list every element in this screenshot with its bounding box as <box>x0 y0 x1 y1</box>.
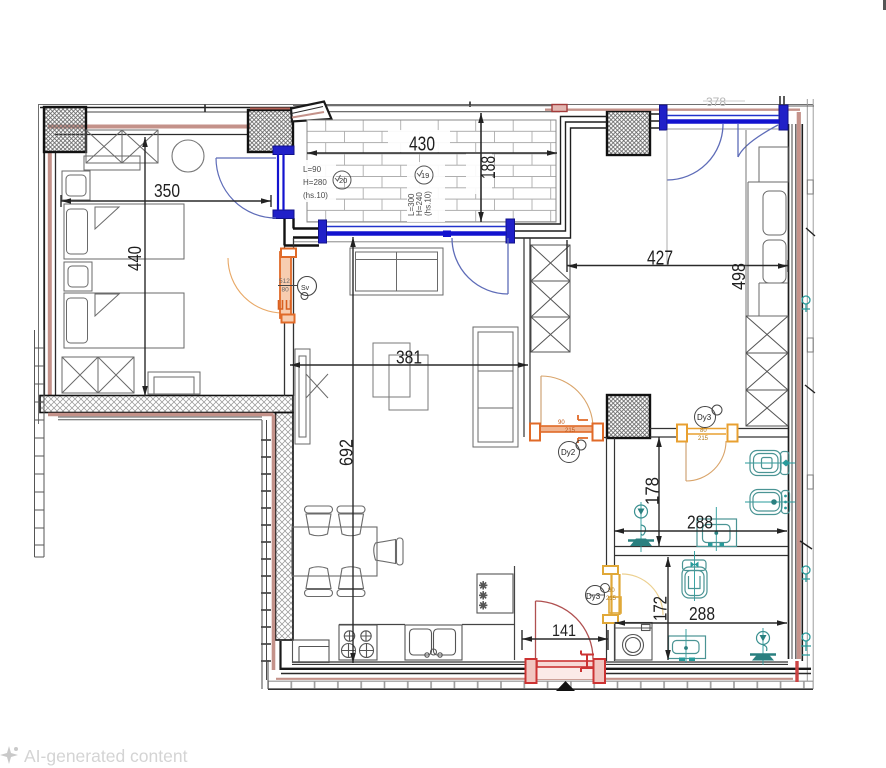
svg-text:512: 512 <box>279 278 290 285</box>
svg-text:215: 215 <box>698 436 709 442</box>
svg-text:430: 430 <box>409 133 435 156</box>
svg-text:440: 440 <box>125 246 145 271</box>
svg-text:381: 381 <box>396 348 422 368</box>
svg-text:90: 90 <box>558 420 565 426</box>
svg-text:288: 288 <box>687 513 713 533</box>
svg-text:141: 141 <box>552 621 576 640</box>
svg-text:(hs.10): (hs.10) <box>303 191 328 200</box>
svg-text:AI-generated content: AI-generated content <box>24 746 188 766</box>
svg-text:L=90: L=90 <box>303 165 322 174</box>
svg-text:172: 172 <box>651 596 671 621</box>
svg-text:215: 215 <box>606 596 617 602</box>
svg-text:H=280: H=280 <box>303 178 327 187</box>
svg-text:(hs.10): (hs.10) <box>424 191 433 216</box>
svg-text:498: 498 <box>729 263 749 290</box>
svg-text:188: 188 <box>477 156 500 179</box>
svg-text:427: 427 <box>647 248 673 270</box>
svg-text:692: 692 <box>336 439 357 466</box>
svg-text:350: 350 <box>154 181 180 201</box>
svg-text:✳: ✳ <box>479 601 487 612</box>
svg-text:80: 80 <box>700 428 707 434</box>
svg-text:19: 19 <box>421 171 429 180</box>
svg-text:288: 288 <box>689 604 715 624</box>
svg-text:Dy3: Dy3 <box>586 592 601 601</box>
svg-text:178: 178 <box>643 477 663 505</box>
svg-text:20: 20 <box>339 176 347 185</box>
svg-text:Dy3: Dy3 <box>697 413 712 422</box>
svg-text:Dy2: Dy2 <box>561 448 576 457</box>
svg-text:Sv: Sv <box>301 285 310 292</box>
svg-text:215: 215 <box>565 428 576 434</box>
svg-text:80: 80 <box>282 287 290 294</box>
svg-text:378: 378 <box>706 95 726 109</box>
